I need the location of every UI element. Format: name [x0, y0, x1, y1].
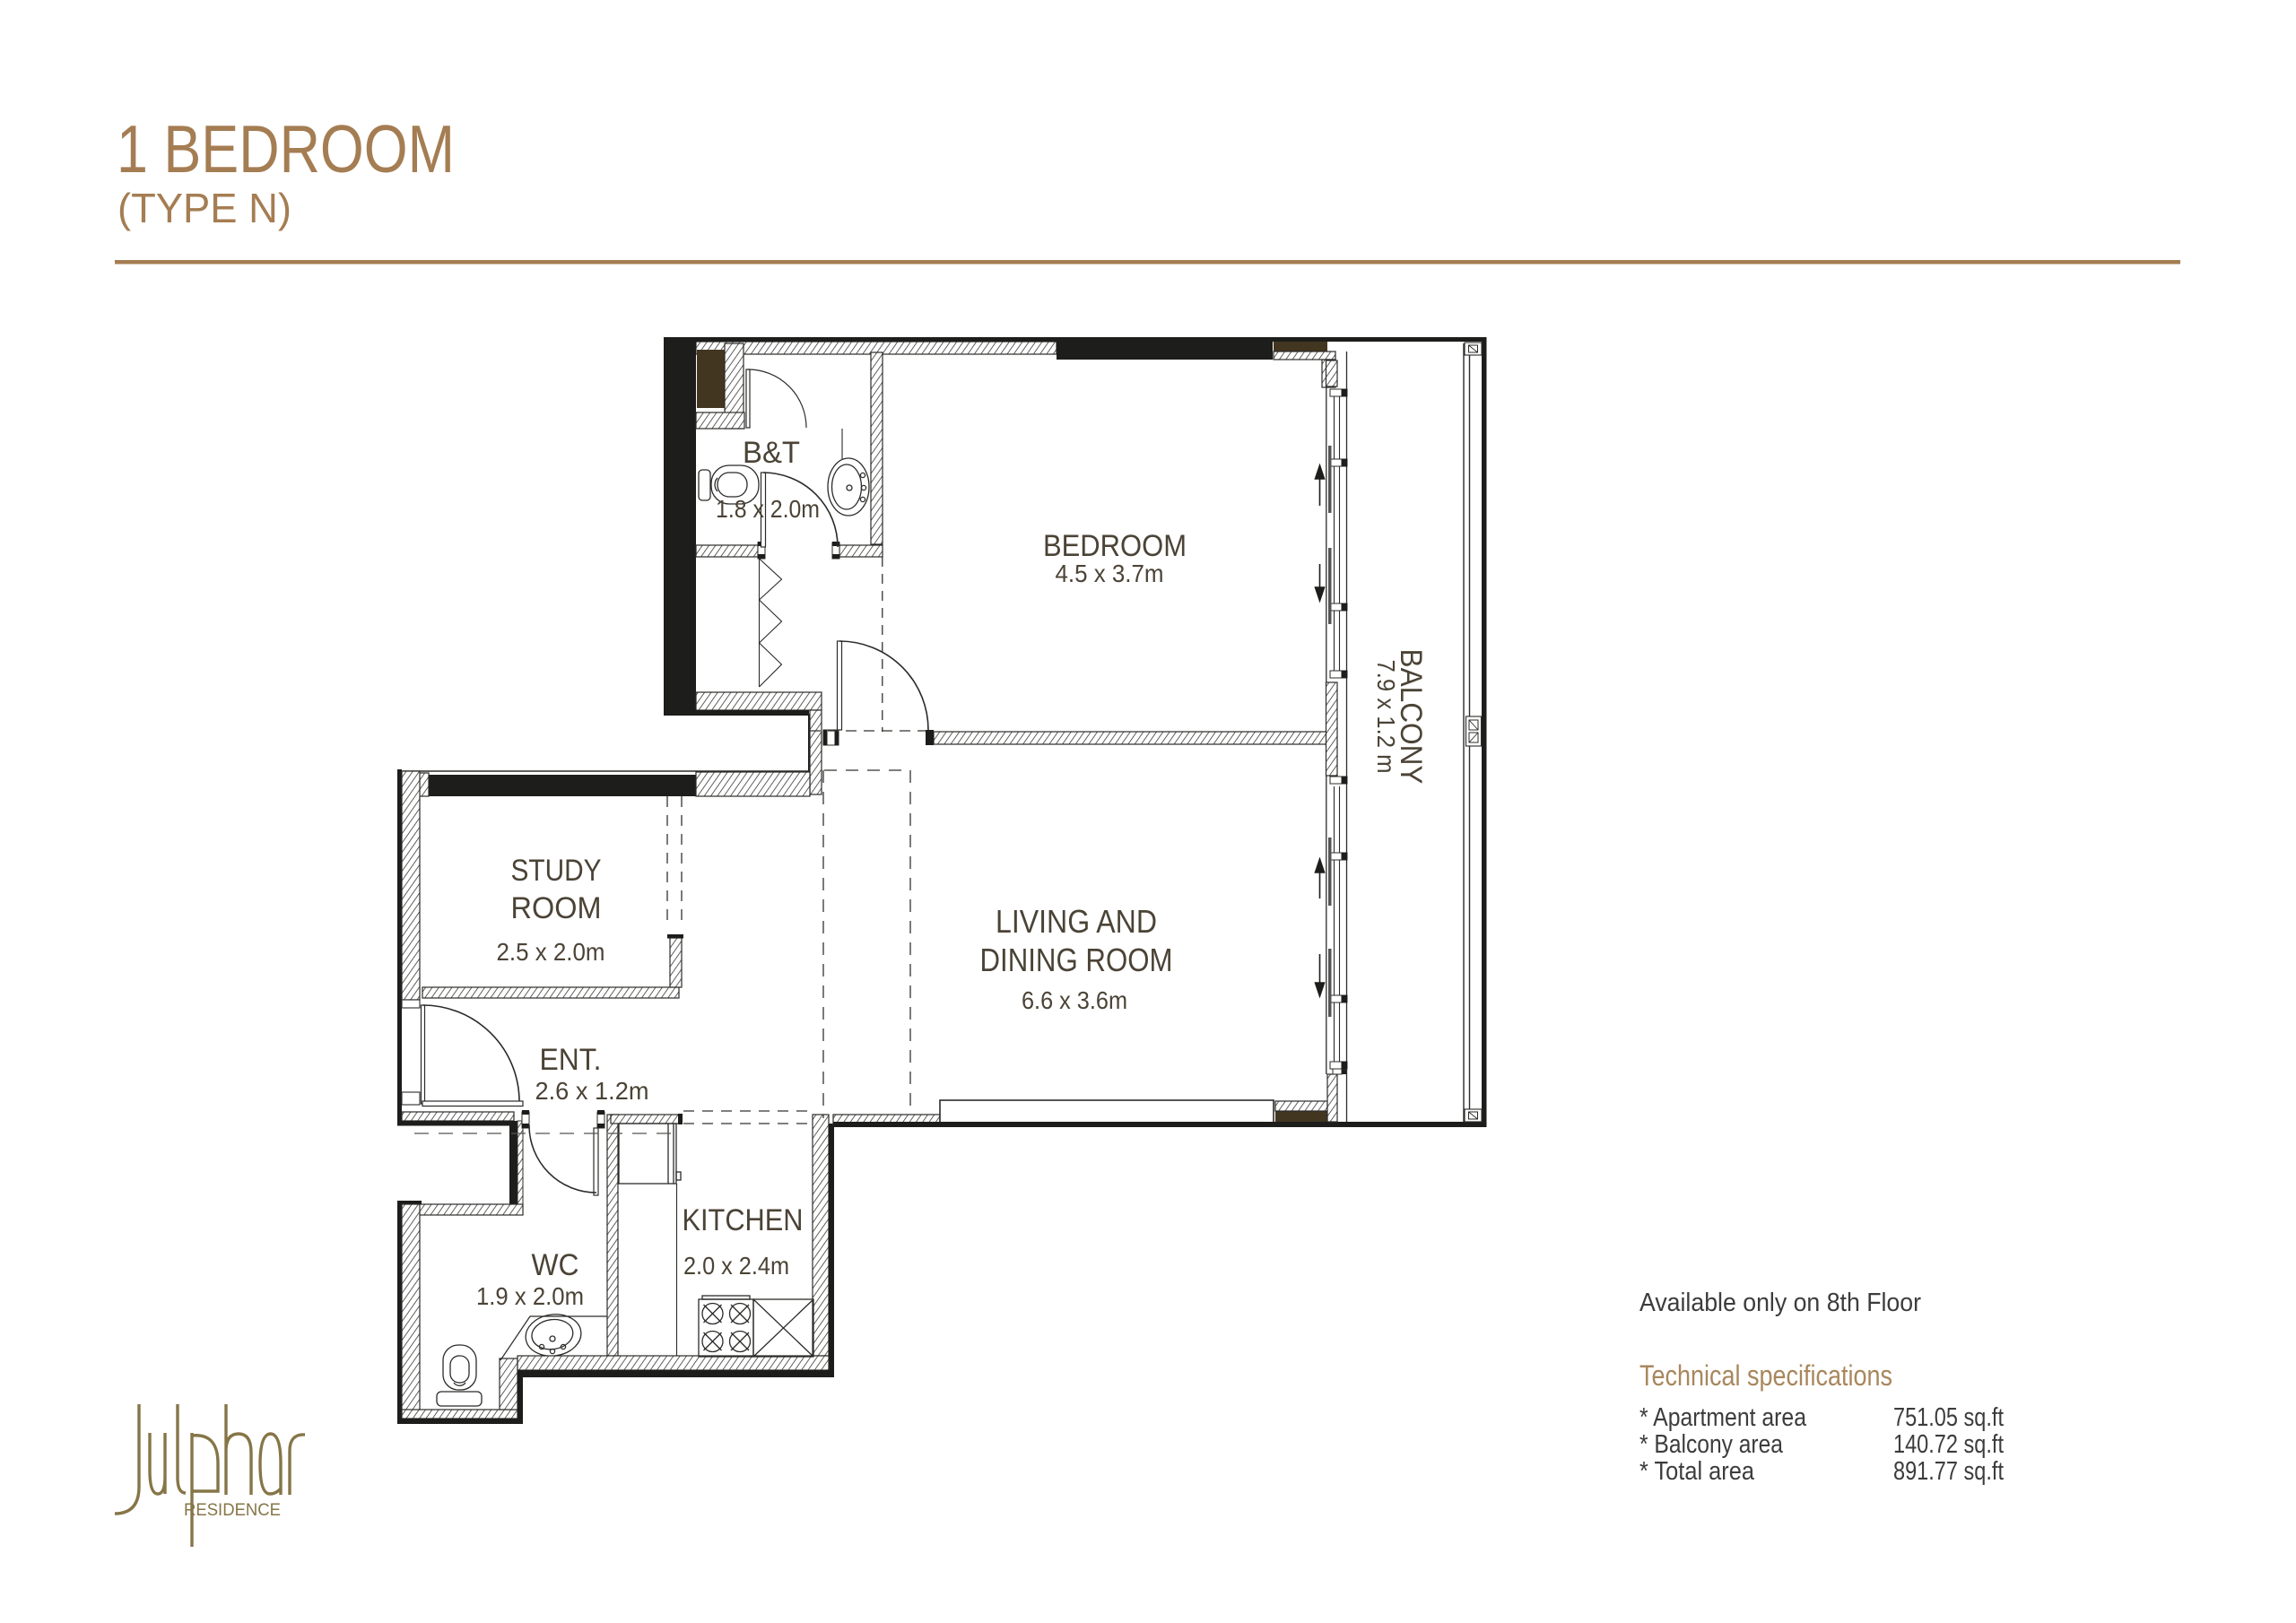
svg-text:Available only on 8th Floor: Available only on 8th Floor: [1639, 1289, 1921, 1317]
svg-text:* Total area: * Total area: [1639, 1457, 1755, 1486]
svg-text:7.9 x 1.2 m: 7.9 x 1.2 m: [1372, 660, 1400, 774]
svg-text:2.0 x 2.4m: 2.0 x 2.4m: [683, 1252, 789, 1280]
svg-text:WC: WC: [532, 1248, 579, 1282]
svg-text:BEDROOM: BEDROOM: [1043, 529, 1187, 563]
svg-text:751.05 sq.ft: 751.05 sq.ft: [1893, 1403, 2004, 1432]
svg-text:Technical specifications: Technical specifications: [1639, 1359, 1892, 1392]
svg-text:1.9 x 2.0m: 1.9 x 2.0m: [476, 1282, 584, 1310]
svg-text:2.5 x 2.0m: 2.5 x 2.0m: [497, 938, 605, 966]
svg-text:2.6 x 1.2m: 2.6 x 1.2m: [535, 1077, 649, 1105]
svg-text:6.6 x 3.6m: 6.6 x 3.6m: [1022, 986, 1127, 1014]
svg-text:891.77 sq.ft: 891.77 sq.ft: [1893, 1457, 2004, 1486]
svg-text:1.8 x 2.0m: 1.8 x 2.0m: [716, 495, 820, 523]
svg-text:1 BEDROOM: 1 BEDROOM: [117, 111, 455, 187]
svg-text:ROOM: ROOM: [511, 891, 602, 925]
svg-text:(TYPE N): (TYPE N): [117, 185, 291, 231]
svg-text:4.5 x 3.7m: 4.5 x 3.7m: [1056, 560, 1164, 587]
svg-text:140.72 sq.ft: 140.72 sq.ft: [1893, 1430, 2004, 1459]
svg-text:B&T: B&T: [743, 436, 800, 470]
svg-text:ENT.: ENT.: [540, 1043, 602, 1077]
svg-text:LIVING AND: LIVING AND: [996, 903, 1157, 940]
svg-text:STUDY: STUDY: [511, 854, 602, 888]
svg-text:DINING ROOM: DINING ROOM: [980, 942, 1173, 978]
svg-text:RESIDENCE: RESIDENCE: [184, 1501, 281, 1520]
svg-text:* Balcony area: * Balcony area: [1639, 1430, 1784, 1459]
svg-text:KITCHEN: KITCHEN: [683, 1203, 804, 1237]
svg-text:* Apartment area: * Apartment area: [1639, 1403, 1807, 1432]
